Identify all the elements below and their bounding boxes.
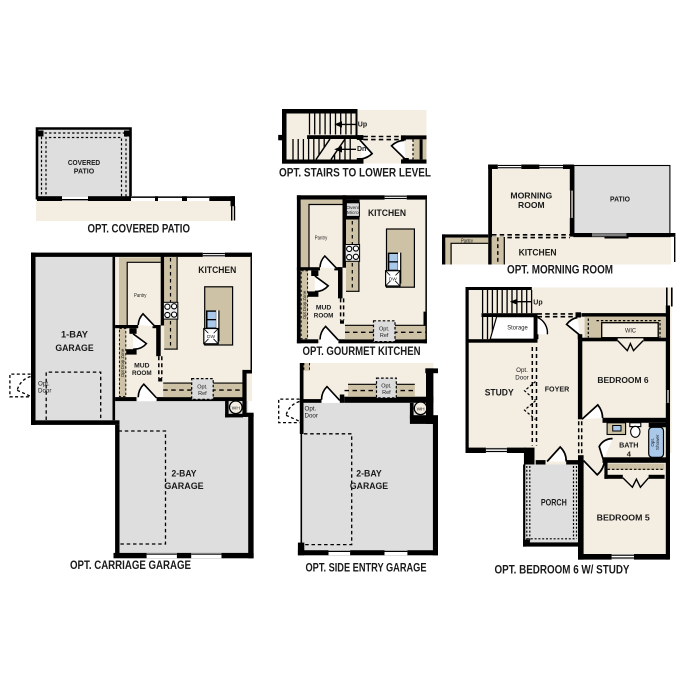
svg-text:OPT. STAIRS TO LOWER LEVEL: OPT. STAIRS TO LOWER LEVEL: [279, 166, 431, 180]
svg-text:STUDY: STUDY: [485, 387, 514, 397]
svg-text:Pantry: Pantry: [134, 293, 147, 299]
svg-text:ROOM: ROOM: [132, 370, 152, 377]
svg-text:DW: DW: [207, 334, 215, 340]
svg-text:GARAGE: GARAGE: [164, 481, 203, 491]
svg-text:Pantry: Pantry: [461, 239, 473, 245]
svg-text:KITCHEN: KITCHEN: [198, 265, 236, 275]
svg-text:Door: Door: [38, 388, 51, 395]
svg-text:2-BAY: 2-BAY: [172, 468, 198, 478]
svg-text:FOYER: FOYER: [545, 384, 570, 393]
svg-text:Micro: Micro: [347, 210, 359, 216]
svg-text:PORCH: PORCH: [541, 498, 567, 508]
svg-text:Up: Up: [358, 121, 367, 128]
svg-text:OPT. COVERED PATIO: OPT. COVERED PATIO: [87, 222, 190, 236]
svg-text:Opt.: Opt.: [381, 383, 392, 389]
svg-text:WIC: WIC: [625, 327, 636, 334]
svg-text:BEDROOM 5: BEDROOM 5: [597, 513, 650, 523]
svg-text:MORNING: MORNING: [510, 191, 552, 201]
svg-text:Opt.: Opt.: [379, 327, 390, 333]
svg-text:KITCHEN: KITCHEN: [368, 208, 406, 218]
svg-text:ROOM: ROOM: [518, 200, 545, 210]
svg-text:GARAGE: GARAGE: [55, 343, 93, 353]
svg-text:ROOM: ROOM: [314, 312, 334, 319]
svg-text:Opt.: Opt.: [38, 381, 50, 388]
svg-text:Door: Door: [515, 375, 528, 382]
svg-text:Dn: Dn: [357, 146, 366, 153]
svg-text:Door: Door: [305, 413, 318, 420]
svg-text:KITCHEN: KITCHEN: [519, 247, 557, 257]
svg-text:Storage: Storage: [507, 324, 528, 331]
svg-text:Oven/: Oven/: [346, 205, 359, 211]
svg-text:OPT. MORNING ROOM: OPT. MORNING ROOM: [507, 263, 613, 277]
svg-text:MUD: MUD: [316, 305, 332, 312]
svg-text:Opt.: Opt.: [305, 406, 317, 413]
svg-text:Ref: Ref: [382, 390, 391, 396]
svg-text:OPT. CARRIAGE GARAGE: OPT. CARRIAGE GARAGE: [70, 558, 191, 572]
svg-text:Opt Drop Zone: Opt Drop Zone: [120, 348, 125, 377]
svg-text:BEDROOM 6: BEDROOM 6: [597, 375, 648, 385]
svg-text:Opt Drop Zone: Opt Drop Zone: [302, 290, 307, 319]
svg-text:OPT. SIDE ENTRY GARAGE: OPT. SIDE ENTRY GARAGE: [306, 561, 427, 575]
svg-text:MUD: MUD: [134, 363, 150, 370]
svg-text:PATIO: PATIO: [610, 197, 631, 204]
svg-text:OPT. BEDROOM 6 W/ STUDY: OPT. BEDROOM 6 W/ STUDY: [495, 562, 630, 576]
svg-text:Ref: Ref: [380, 333, 389, 339]
svg-text:Pantry: Pantry: [315, 235, 328, 241]
svg-text:Up: Up: [533, 299, 542, 306]
svg-text:WH: WH: [232, 405, 241, 411]
svg-text:1-BAY: 1-BAY: [61, 330, 89, 340]
svg-text:Opt.: Opt.: [197, 384, 208, 390]
svg-text:GARAGE: GARAGE: [350, 481, 388, 491]
svg-text:DW: DW: [389, 276, 397, 282]
svg-text:Shower: Shower: [655, 434, 660, 450]
svg-text:OPT. GOURMET KITCHEN: OPT. GOURMET KITCHEN: [303, 344, 421, 358]
svg-text:PATIO: PATIO: [74, 168, 95, 175]
svg-text:Ref: Ref: [198, 391, 207, 397]
svg-text:COVERED: COVERED: [68, 160, 100, 167]
svg-text:Opt.: Opt.: [516, 367, 528, 374]
svg-text:BATH: BATH: [619, 441, 638, 450]
svg-text:WH: WH: [417, 406, 426, 412]
svg-text:2-BAY: 2-BAY: [356, 468, 382, 478]
